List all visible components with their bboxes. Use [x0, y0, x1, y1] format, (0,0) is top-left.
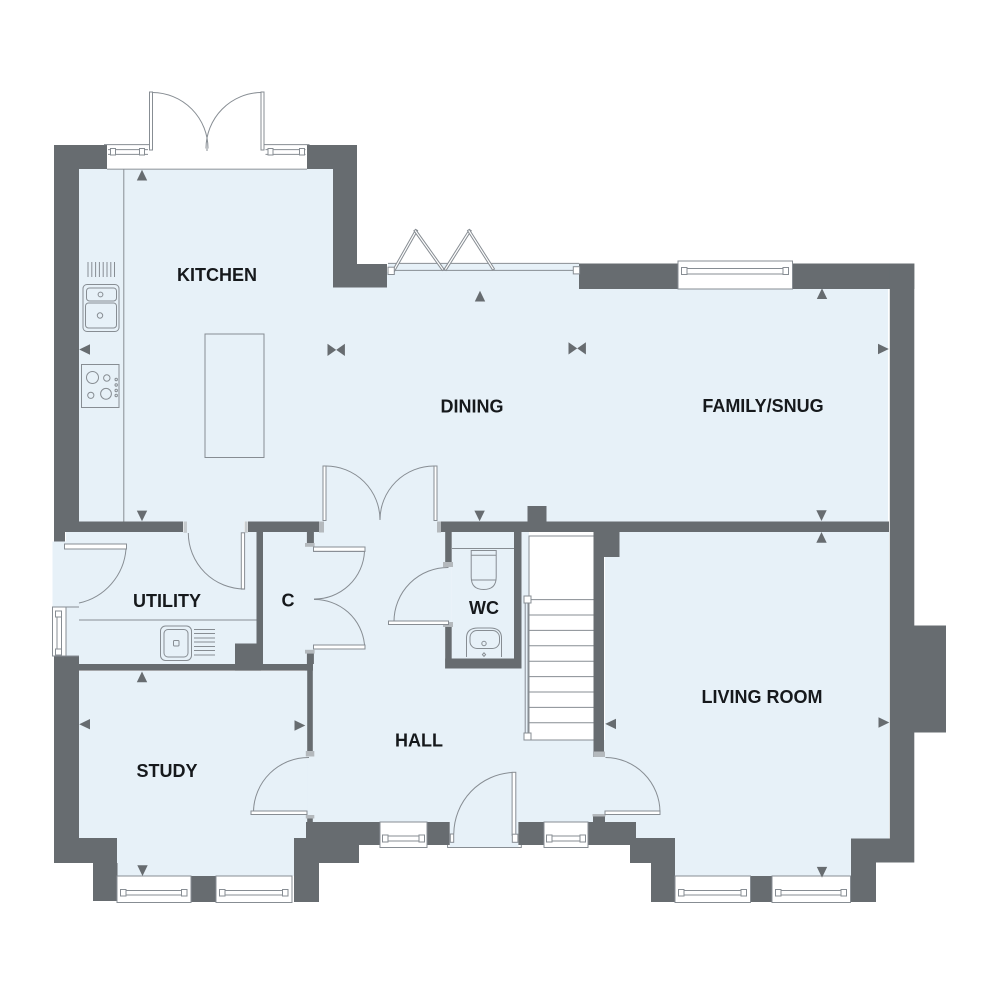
svg-text:DINING: DINING: [441, 397, 504, 417]
svg-text:KITCHEN: KITCHEN: [177, 265, 257, 285]
svg-text:LIVING ROOM: LIVING ROOM: [702, 687, 823, 707]
svg-text:STUDY: STUDY: [136, 761, 197, 781]
svg-text:FAMILY/SNUG: FAMILY/SNUG: [702, 396, 823, 416]
svg-text:HALL: HALL: [395, 731, 443, 751]
svg-text:WC: WC: [469, 598, 499, 618]
svg-text:UTILITY: UTILITY: [133, 591, 201, 611]
svg-text:C: C: [282, 591, 295, 611]
